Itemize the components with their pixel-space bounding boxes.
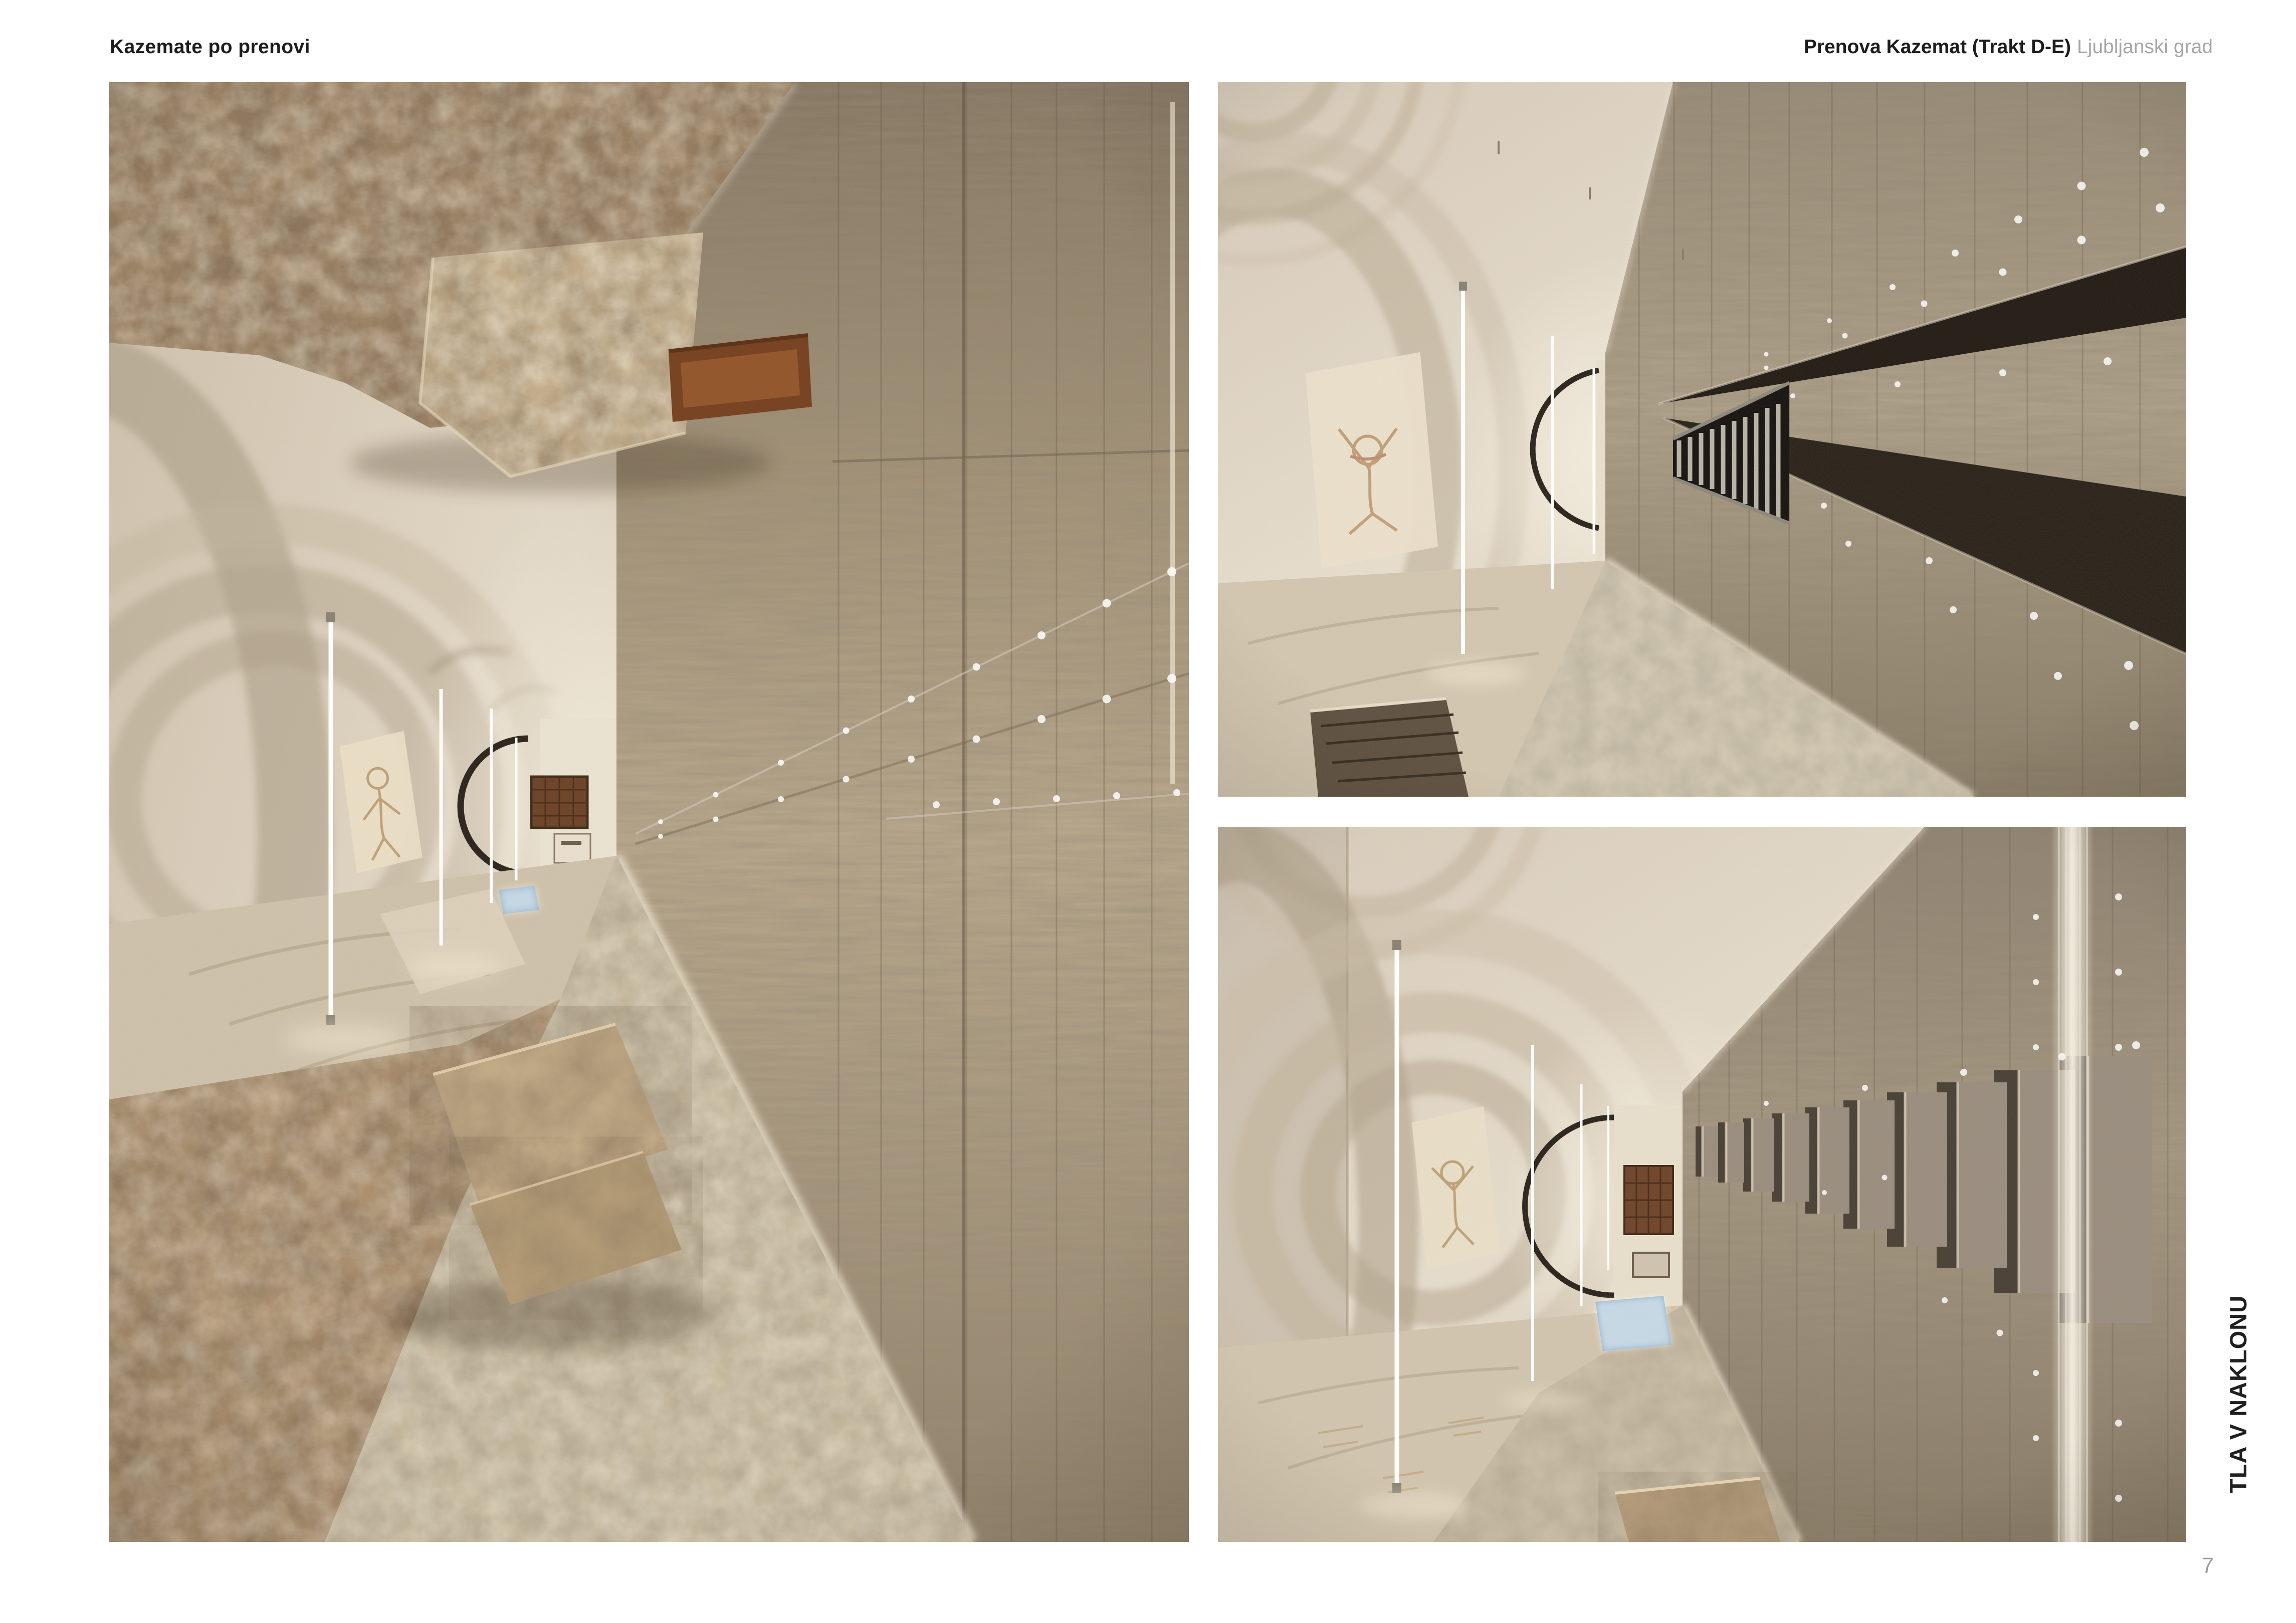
portfolio-page: Kazemate po prenovi Prenova Kazemat (Tra… bbox=[0, 0, 2296, 1623]
side-label-vertical: TLA V NAKLONU bbox=[2224, 1295, 2252, 1493]
photo-corridor-bottom-right bbox=[1218, 827, 2186, 1542]
page-title: Kazemate po prenovi bbox=[110, 36, 310, 58]
photo-left-illustration bbox=[109, 82, 1189, 1542]
vignette bbox=[1218, 827, 2186, 1542]
photo-corridor-left bbox=[109, 82, 1189, 1542]
photo-corridor-top-right bbox=[1218, 82, 2186, 797]
vignette bbox=[1218, 82, 2186, 797]
photo-bottom-right-illustration bbox=[1218, 827, 2186, 1542]
photo-top-right-illustration bbox=[1218, 82, 2186, 797]
page-number: 7 bbox=[2202, 1553, 2214, 1578]
vignette bbox=[109, 82, 1189, 1542]
project-title: Prenova Kazemat (Trakt D-E) bbox=[1804, 36, 2071, 58]
project-header: Prenova Kazemat (Trakt D-E)Ljubljanski g… bbox=[1804, 36, 2213, 58]
project-location: Ljubljanski grad bbox=[2077, 36, 2213, 58]
